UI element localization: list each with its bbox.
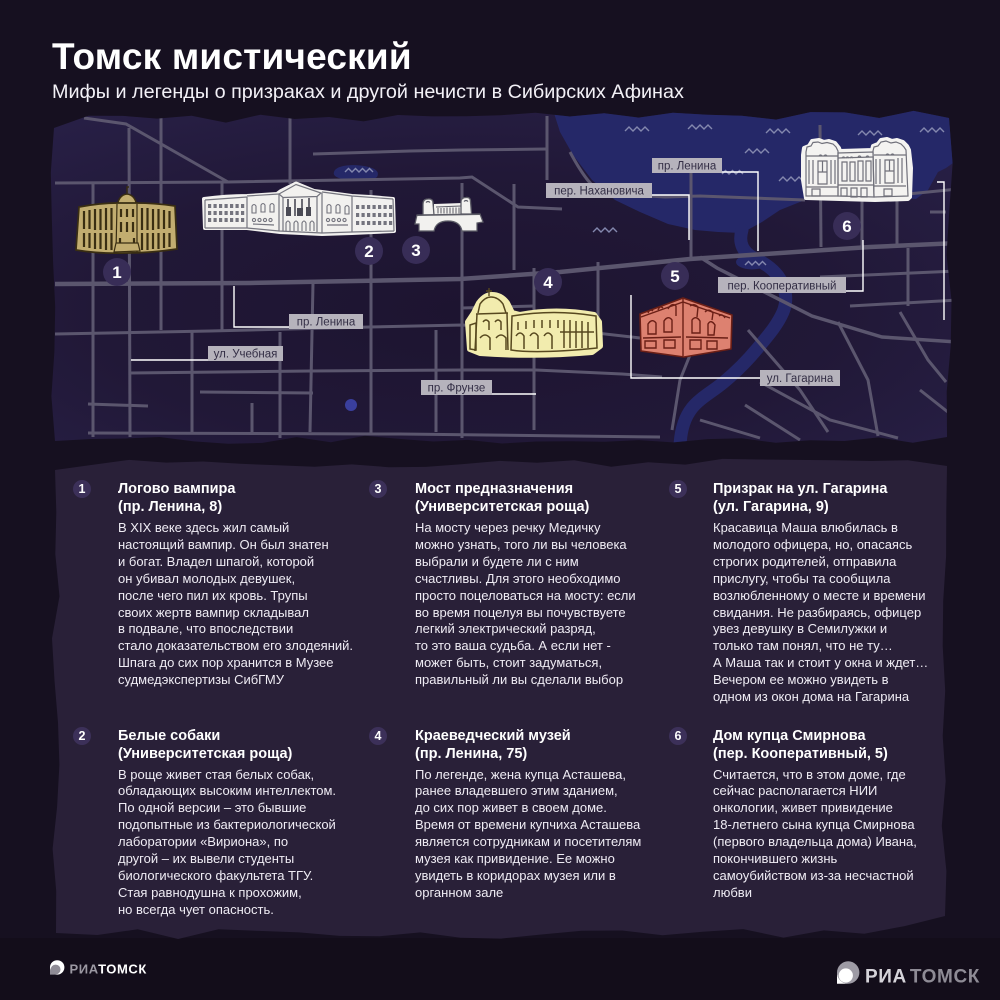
svg-text:4: 4 — [543, 273, 553, 292]
svg-text:РИАТОМСК: РИАТОМСК — [70, 961, 147, 976]
svg-text:3: 3 — [411, 241, 420, 260]
svg-text:6: 6 — [842, 217, 851, 236]
svg-text:1: 1 — [112, 263, 121, 282]
svg-text:пр. Ленина: пр. Ленина — [297, 317, 356, 329]
svg-text:пер. Нахановича: пер. Нахановича — [554, 186, 644, 198]
svg-text:пр. Фрунзе: пр. Фрунзе — [428, 383, 486, 395]
svg-text:РИАТОМСК: РИАТОМСК — [865, 967, 980, 986]
svg-text:ул. Гагарина: ул. Гагарина — [767, 373, 834, 385]
svg-text:5: 5 — [670, 267, 679, 286]
svg-text:пр. Ленина: пр. Ленина — [658, 161, 717, 173]
svg-text:пер. Кооперативный: пер. Кооперативный — [728, 281, 837, 293]
svg-text:2: 2 — [364, 242, 373, 261]
svg-text:ул. Учебная: ул. Учебная — [214, 349, 278, 361]
